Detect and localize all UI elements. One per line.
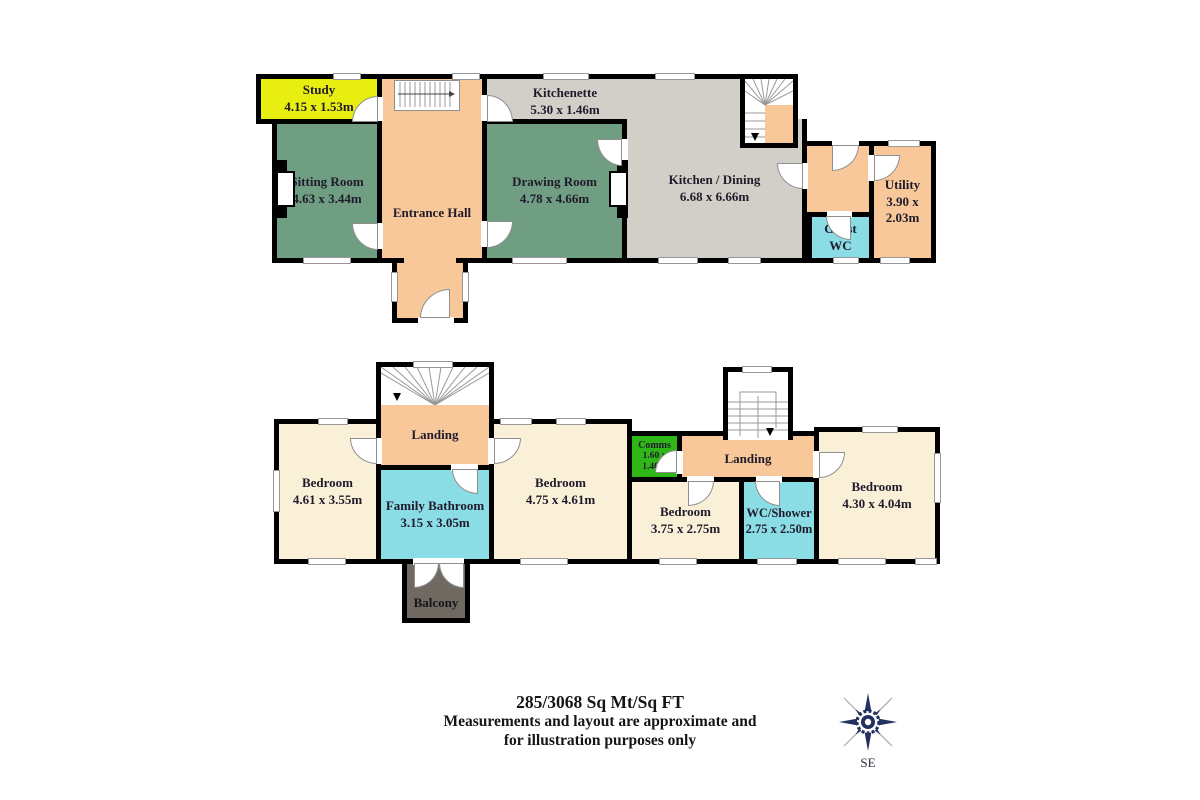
window xyxy=(862,426,898,433)
window xyxy=(500,418,532,425)
room-bedroom-3: Bedroom 3.75 x 2.75m xyxy=(627,477,744,564)
window xyxy=(658,257,698,264)
stairs-return-icon xyxy=(728,372,788,438)
stairs-fan xyxy=(381,367,489,405)
window xyxy=(512,257,567,264)
window xyxy=(757,558,797,565)
floorplan-canvas: Kitchenette 5.30 x 1.46m Kitchen / Dinin… xyxy=(0,0,1200,800)
footer-note: 285/3068 Sq Mt/Sq FT Measurements and la… xyxy=(300,692,900,750)
ground-stairwell xyxy=(740,74,798,148)
window xyxy=(303,257,351,264)
window xyxy=(462,272,469,302)
door-opening xyxy=(418,317,454,324)
room-name: Bedroom xyxy=(651,504,720,521)
room-name: Sitting Room xyxy=(290,174,363,191)
fireplace-nub xyxy=(276,160,287,171)
room-bedroom-4: Bedroom 4.30 x 4.04m xyxy=(814,427,940,564)
compass-icon xyxy=(838,692,898,752)
fireplace-nub xyxy=(617,207,628,218)
fireplace-icon xyxy=(276,171,295,207)
room-name: Landing xyxy=(725,451,772,468)
window xyxy=(452,73,480,80)
fireplace-icon xyxy=(609,171,628,207)
compass-direction-label: SE xyxy=(836,755,900,771)
room-name: Family Bathroom xyxy=(386,498,484,515)
first-floor-stairwell-right xyxy=(723,367,793,440)
room-name: Bedroom xyxy=(293,475,362,492)
room-dims: 2.75 x 2.50m xyxy=(746,521,813,537)
window xyxy=(556,418,586,425)
room-dims: 4.75 x 4.61m xyxy=(526,492,595,509)
window xyxy=(273,470,280,512)
window xyxy=(659,558,697,565)
window xyxy=(520,558,568,565)
window xyxy=(888,140,920,147)
room-name: Landing xyxy=(412,427,459,444)
room-name: Study xyxy=(284,82,353,99)
room-dims: 3.75 x 2.75m xyxy=(651,521,720,538)
room-name: Bedroom xyxy=(526,475,595,492)
room-dims: 6.68 x 6.66m xyxy=(669,189,761,206)
room-dims: 5.30 x 1.46m xyxy=(499,102,631,119)
hall-porch-opening xyxy=(404,256,456,266)
room-dims: 3.15 x 3.05m xyxy=(386,515,484,532)
room-dims: 4.30 x 4.04m xyxy=(842,496,911,513)
room-name: Utility xyxy=(877,177,929,194)
window xyxy=(838,558,886,565)
room-name: Balcony xyxy=(414,595,459,612)
room-name: WC/Shower xyxy=(746,505,813,521)
window xyxy=(833,257,859,264)
window xyxy=(308,558,346,565)
window xyxy=(915,558,937,565)
room-dims: 4.15 x 1.53m xyxy=(284,99,353,116)
disclaimer-line-1: Measurements and layout are approximate … xyxy=(300,713,900,732)
window xyxy=(728,257,761,264)
window xyxy=(880,257,910,264)
entrance-stairs xyxy=(394,80,460,111)
room-name: Entrance Hall xyxy=(386,205,478,222)
window xyxy=(543,73,589,80)
window xyxy=(318,418,348,425)
window xyxy=(742,366,772,373)
door-opening xyxy=(676,451,683,474)
room-name: Kitchenette xyxy=(499,85,631,102)
window xyxy=(333,73,361,80)
room-dims: 3.90 x 2.03m xyxy=(877,194,929,227)
room-name: Drawing Room xyxy=(512,174,597,191)
window xyxy=(655,73,695,80)
room-dims: 4.61 x 3.55m xyxy=(293,492,362,509)
fireplace-nub xyxy=(276,207,287,218)
room-dims: 4.63 x 3.44m xyxy=(290,191,363,208)
first-floor-stairwell-left: Landing xyxy=(376,362,494,470)
room-name: Kitchen / Dining xyxy=(669,172,761,189)
disclaimer-line-2: for illustration purposes only xyxy=(300,732,900,751)
window xyxy=(413,361,453,368)
room-dims: 4.78 x 4.66m xyxy=(512,191,597,208)
stairs-fan-icon xyxy=(381,367,489,405)
room-name: Bedroom xyxy=(842,479,911,496)
stairs-straight-icon xyxy=(395,81,457,108)
room-name: Comms xyxy=(634,440,676,452)
area-total: 285/3068 Sq Mt/Sq FT xyxy=(300,692,900,713)
stairs-winder-icon xyxy=(745,79,793,143)
window xyxy=(934,453,941,503)
compass-rose: SE xyxy=(836,692,900,774)
window xyxy=(391,272,398,302)
